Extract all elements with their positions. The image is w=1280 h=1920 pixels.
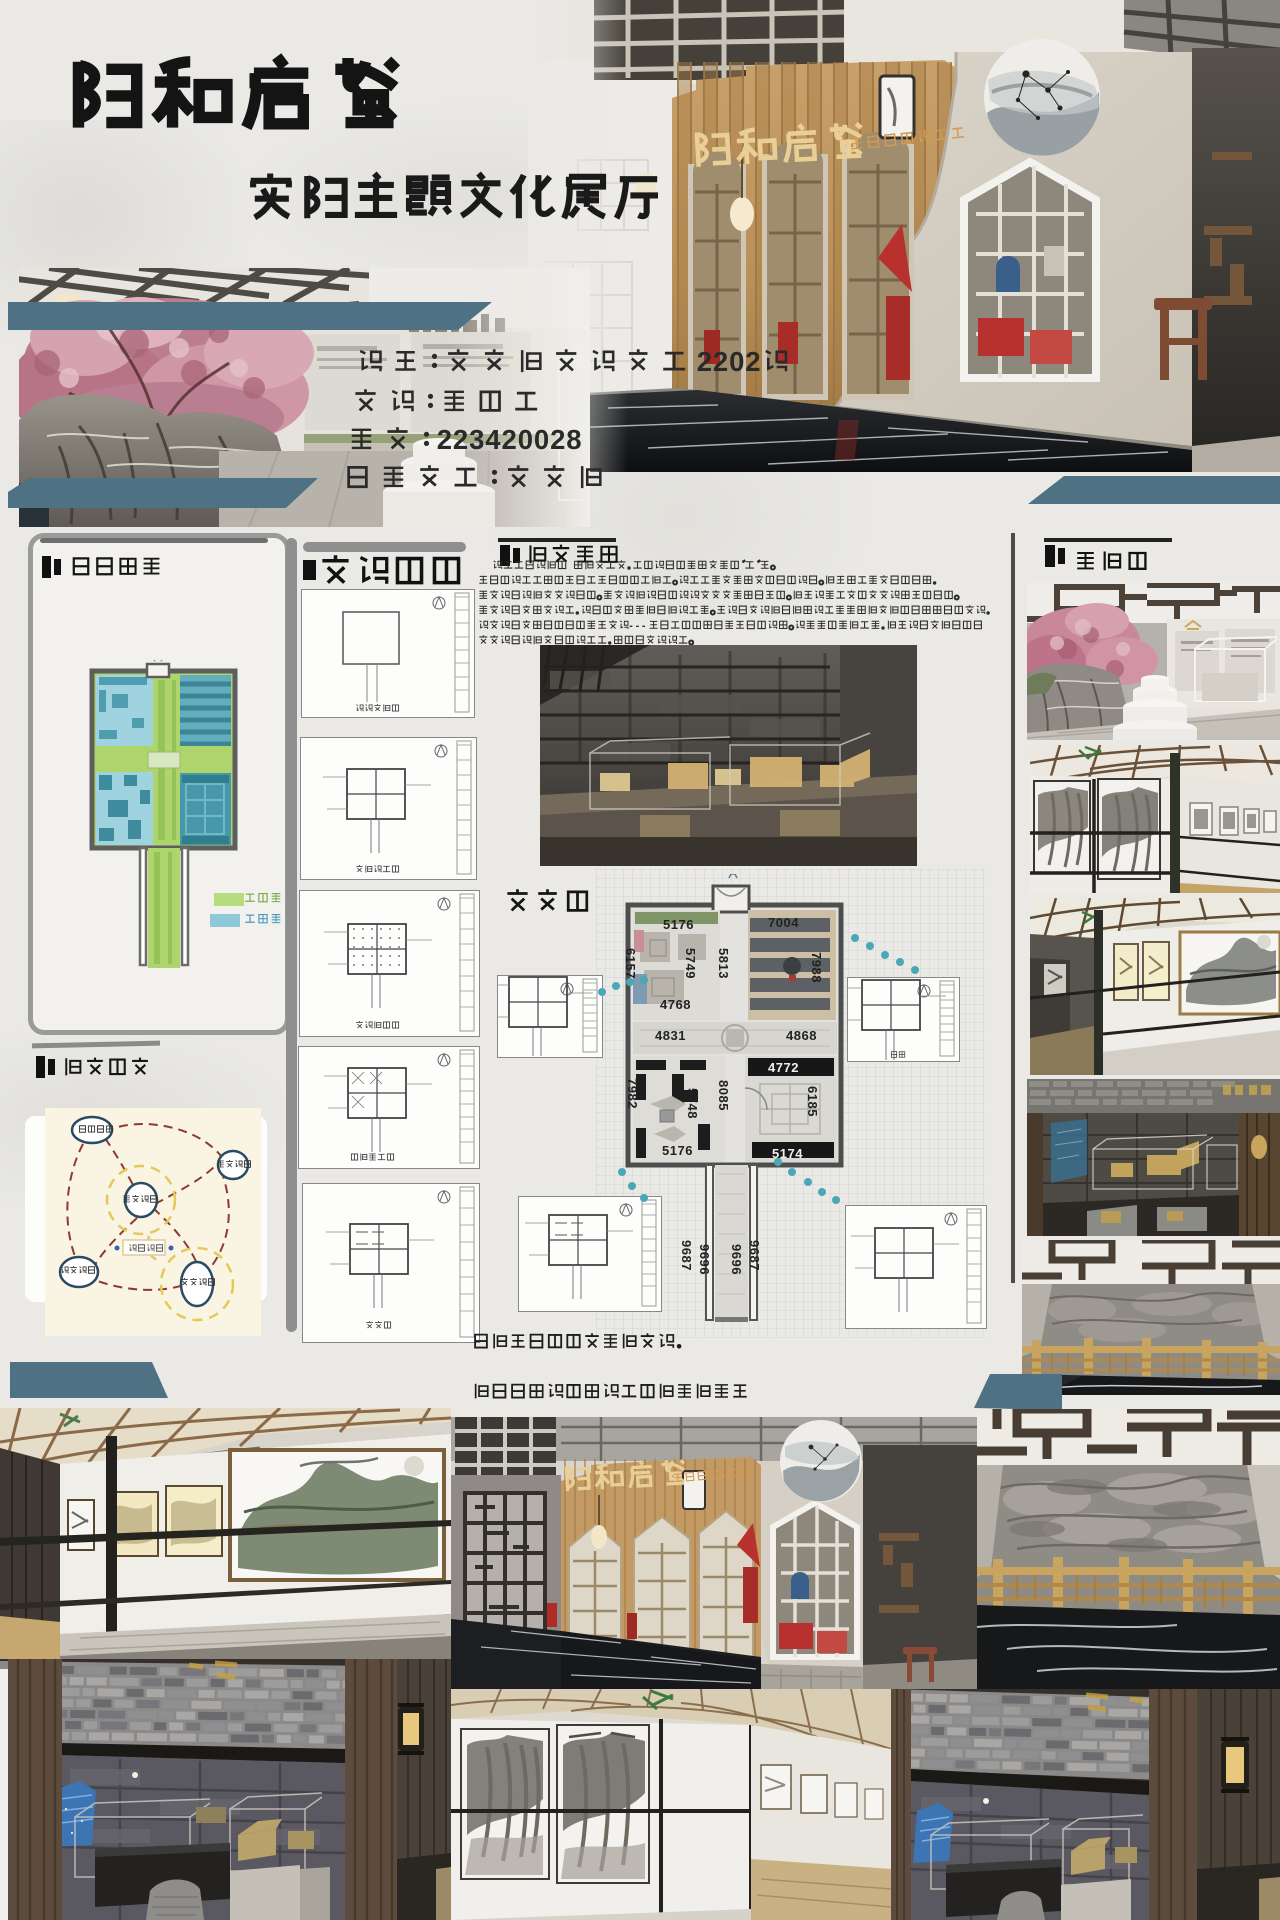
svg-text:8: 8: [566, 424, 581, 455]
svg-text:2: 2: [502, 424, 517, 455]
svg-text:0: 0: [518, 424, 533, 455]
svg-text:2: 2: [437, 424, 452, 455]
svg-text:-: -: [629, 620, 633, 632]
svg-text:2: 2: [697, 346, 712, 377]
svg-text:0: 0: [534, 424, 549, 455]
svg-text:2: 2: [713, 346, 728, 377]
svg-text:-: -: [642, 620, 646, 632]
svg-text:3: 3: [469, 424, 484, 455]
svg-text:0: 0: [729, 346, 744, 377]
svg-text:2: 2: [550, 424, 565, 455]
svg-text:2: 2: [745, 346, 760, 377]
svg-text:4: 4: [485, 424, 501, 455]
svg-text:2: 2: [453, 424, 468, 455]
svg-text:-: -: [636, 620, 640, 632]
